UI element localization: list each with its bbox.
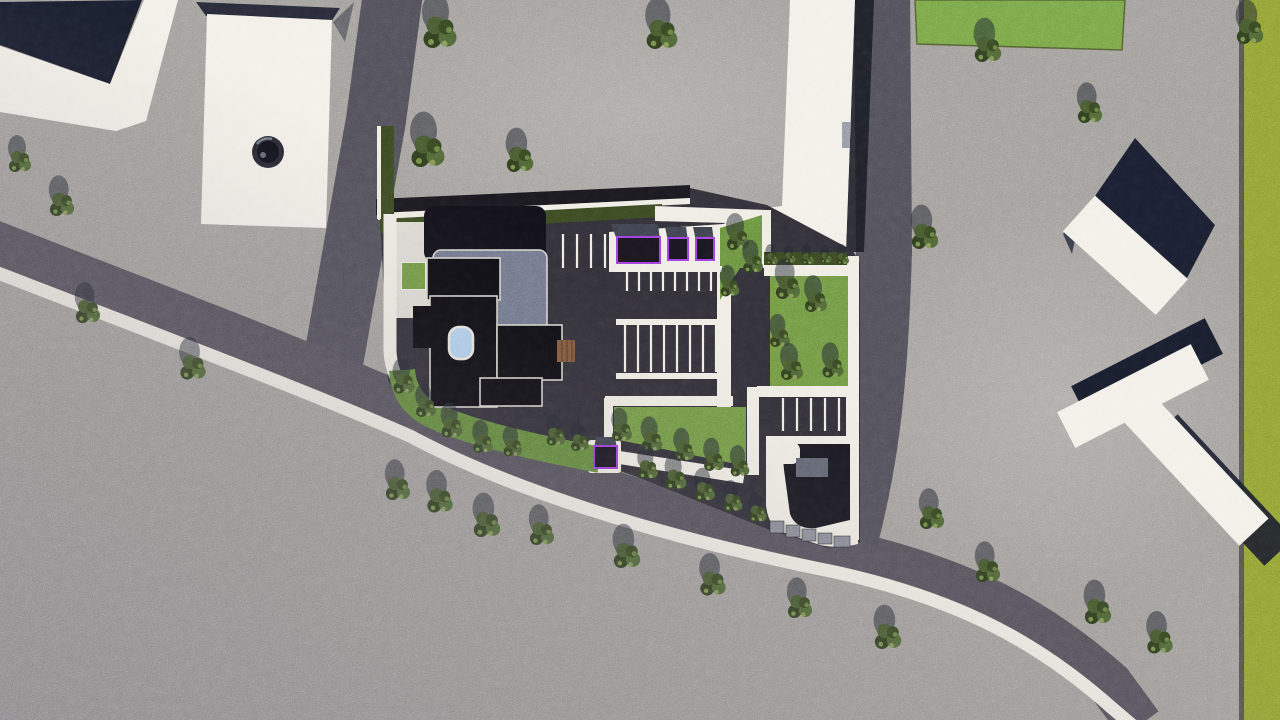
grain-overlay-coarse xyxy=(0,0,1280,720)
aerial-scene xyxy=(0,0,1280,720)
site-plan-render xyxy=(0,0,1280,720)
